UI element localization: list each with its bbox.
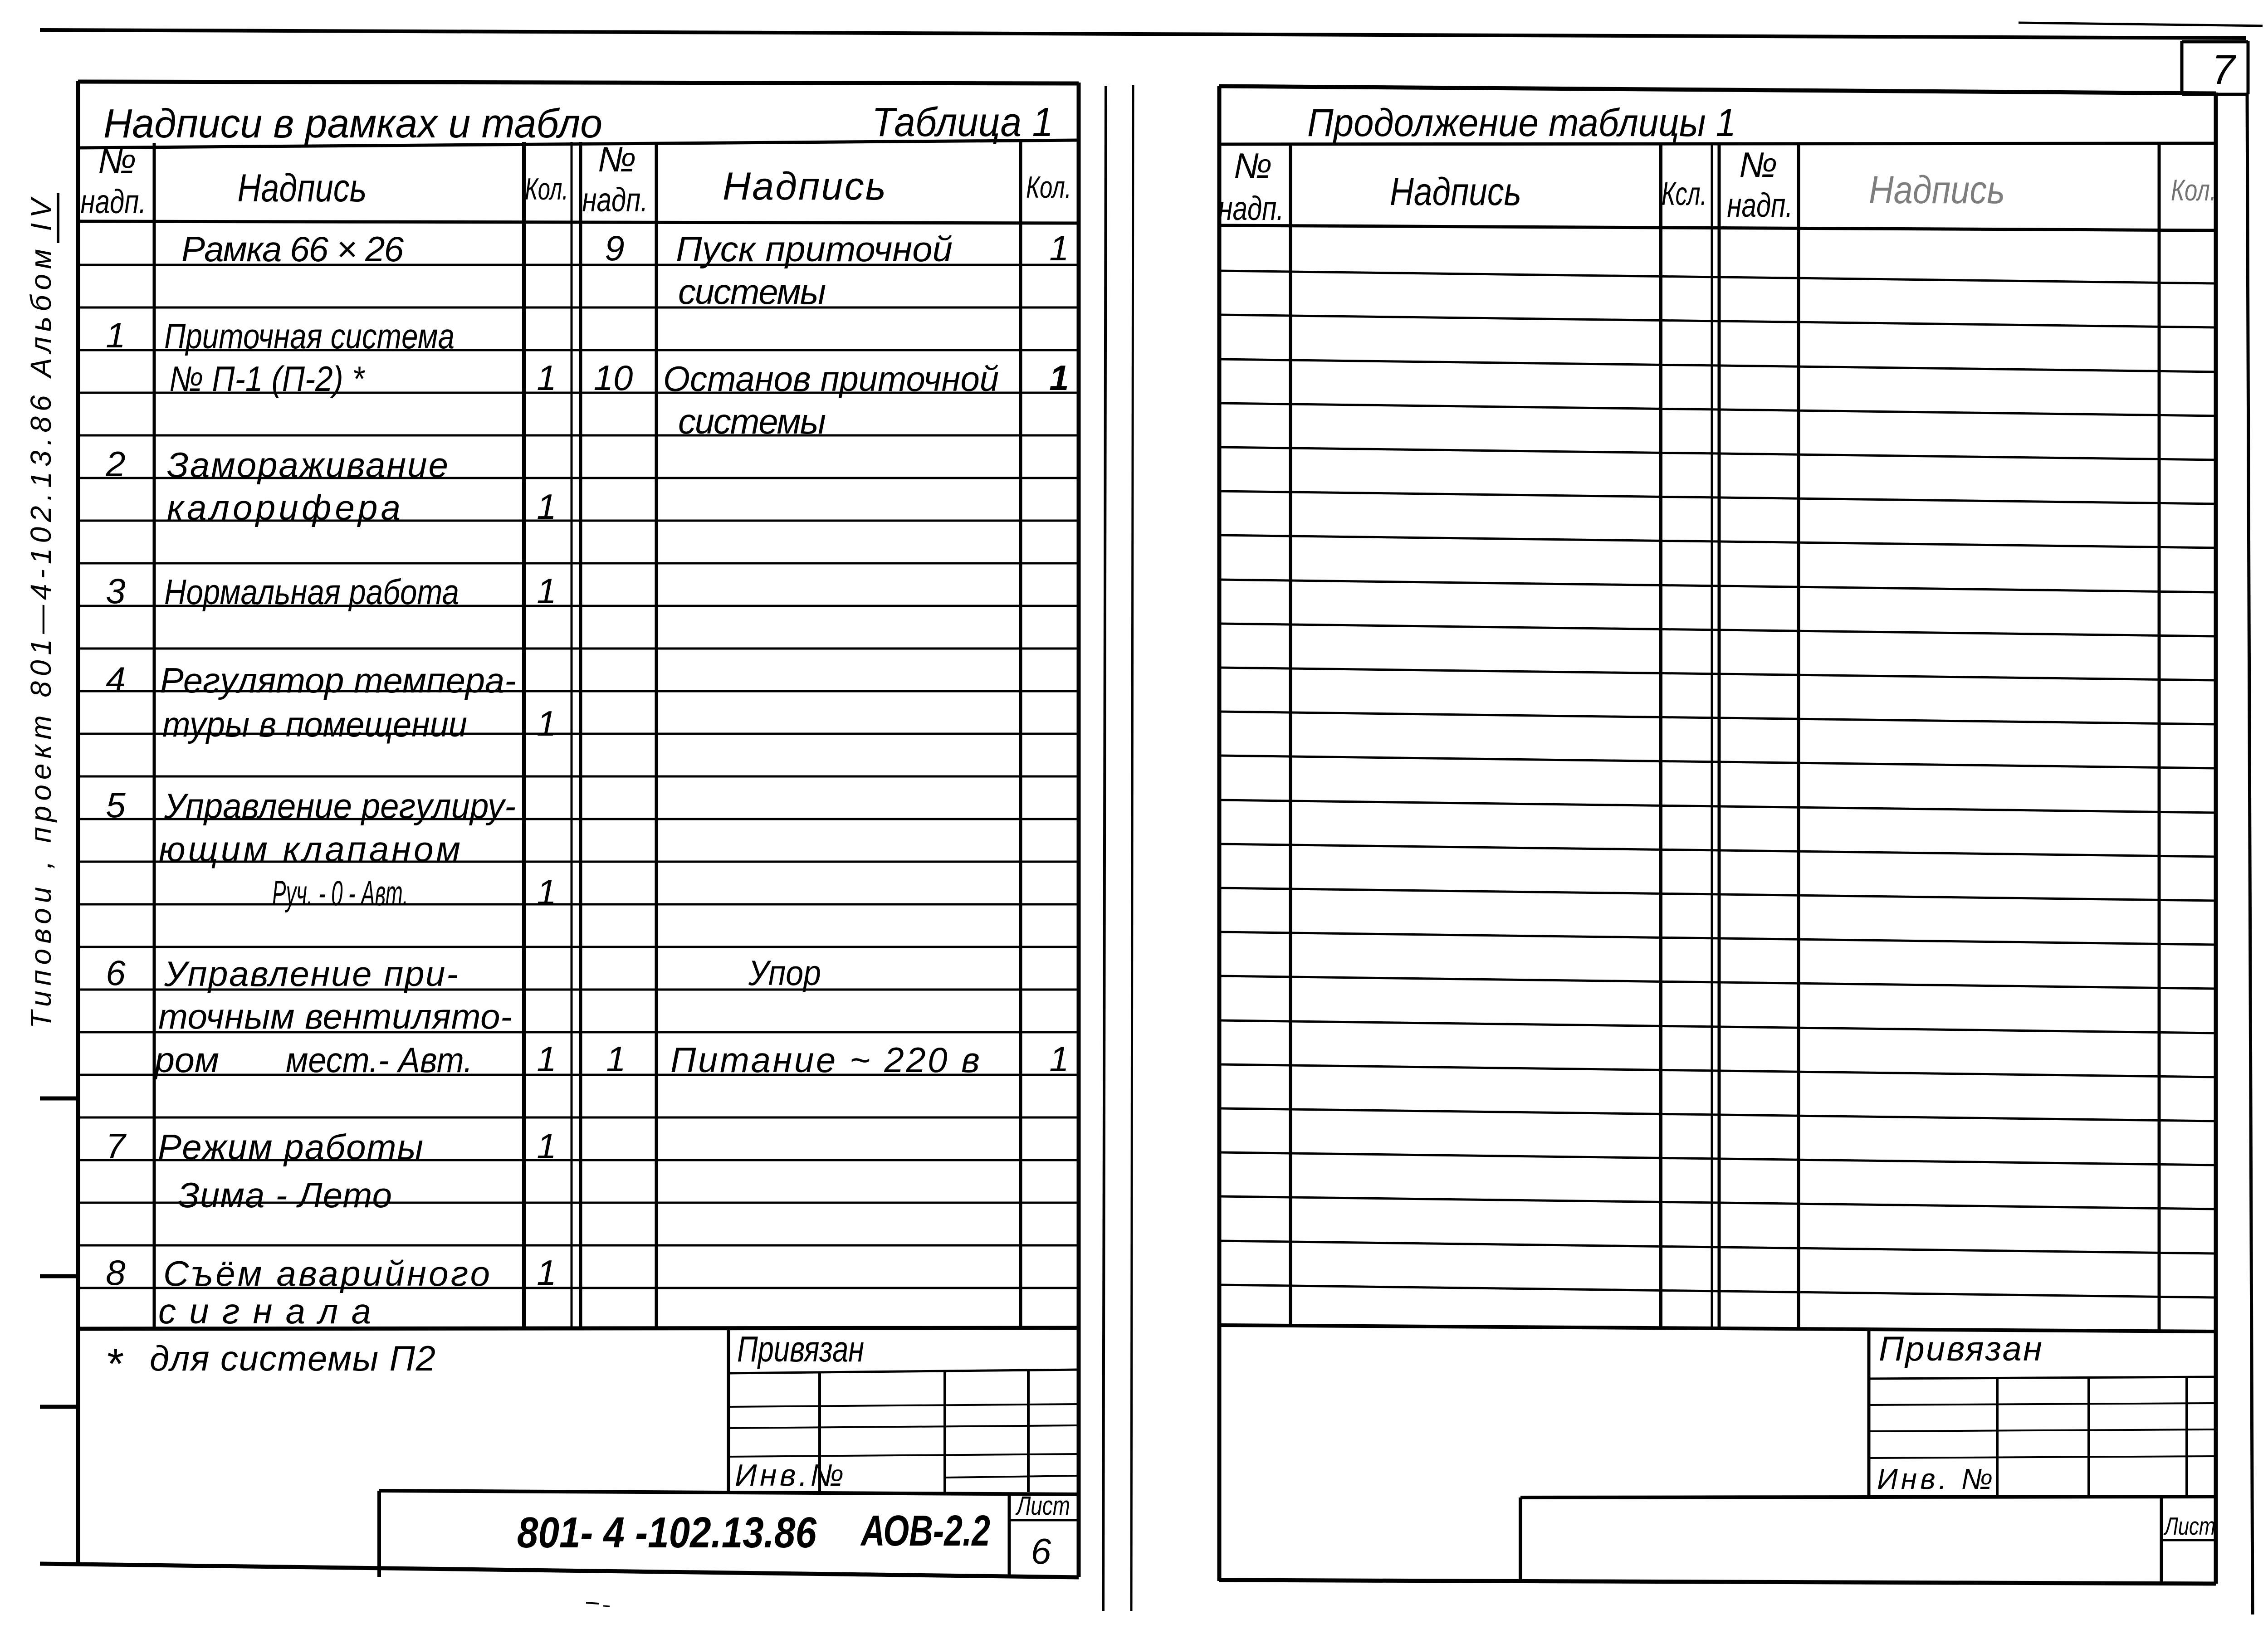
svg-text:Надпись: Надпись — [1869, 168, 2005, 212]
svg-text:№: № — [1234, 146, 1272, 185]
svg-text:АОВ-2.2: АОВ-2.2 — [860, 1507, 990, 1555]
svg-text:ющим клапаном: ющим клапаном — [159, 829, 460, 869]
svg-text:1: 1 — [537, 358, 556, 398]
svg-text:Инв.№: Инв.№ — [735, 1458, 844, 1493]
svg-text:4: 4 — [106, 659, 125, 699]
svg-text:Регулятор темпера-: Регулятор темпера- — [160, 660, 516, 700]
svg-text:10: 10 — [594, 358, 633, 398]
svg-text:1: 1 — [537, 703, 556, 743]
svg-text:Надпись: Надпись — [1390, 170, 1521, 214]
svg-text:Кол.: Кол. — [525, 172, 568, 206]
svg-text:8: 8 — [106, 1253, 125, 1293]
svg-text:надп.: надп. — [81, 183, 147, 220]
svg-text:Кол.: Кол. — [2171, 173, 2216, 207]
svg-text:№ П-1 (П-2) *: № П-1 (П-2) * — [169, 359, 365, 399]
svg-text:калорифера: калорифера — [167, 488, 401, 527]
svg-text:мест.- Авт.: мест.- Авт. — [286, 1040, 473, 1080]
svg-text:Рамка 66 × 26: Рамка 66 × 26 — [181, 229, 404, 269]
svg-text:надп.: надп. — [1218, 190, 1284, 227]
svg-text:Лист: Лист — [2164, 1512, 2215, 1540]
svg-text:Привязан: Привязан — [1879, 1330, 2042, 1368]
svg-text:Управление регулиру-: Управление регулиру- — [164, 786, 516, 826]
svg-text:7: 7 — [106, 1126, 127, 1166]
svg-text:Замораживание: Замораживание — [167, 445, 448, 485]
svg-text:801- 4 -102.13.86: 801- 4 -102.13.86 — [517, 1508, 817, 1557]
svg-text:1: 1 — [1049, 1039, 1069, 1079]
svg-text:Пуск приточной: Пуск приточной — [676, 229, 953, 269]
svg-text:Руч. - 0 - Авт.: Руч. - 0 - Авт. — [272, 873, 408, 913]
svg-text:3: 3 — [106, 571, 125, 611]
svg-text:1: 1 — [537, 487, 556, 527]
svg-text:Лист: Лист — [1015, 1491, 1070, 1521]
svg-text:Продолжение таблицы 1: Продолжение таблицы 1 — [1307, 101, 1736, 145]
svg-text:1: 1 — [606, 1039, 626, 1079]
svg-text:Останов приточной: Останов приточной — [663, 359, 999, 399]
svg-text:6: 6 — [106, 953, 126, 993]
svg-text:системы: системы — [678, 272, 826, 312]
svg-text:системы: системы — [678, 401, 826, 441]
svg-text:Приточная система: Приточная система — [164, 316, 455, 356]
svg-text:1: 1 — [537, 872, 556, 912]
svg-text:1: 1 — [1049, 228, 1069, 268]
svg-text:9: 9 — [605, 228, 624, 268]
svg-text:Питание ~ 220 в: Питание ~ 220 в — [670, 1040, 980, 1080]
svg-text:1: 1 — [537, 1253, 556, 1293]
svg-text:Привязан: Привязан — [737, 1329, 864, 1369]
svg-text:Надписи в рамках и табло: Надписи в рамках и табло — [103, 101, 602, 146]
svg-text:1: 1 — [537, 571, 556, 611]
svg-text:ром: ром — [154, 1040, 219, 1080]
svg-text:Таблица 1: Таблица 1 — [872, 100, 1053, 145]
svg-text:Кол.: Кол. — [1026, 170, 1071, 205]
svg-text:№: № — [98, 141, 136, 181]
svg-text:Зима - Лето: Зима - Лето — [178, 1175, 392, 1215]
svg-text:6: 6 — [1031, 1531, 1051, 1571]
svg-text:Упор: Упор — [748, 953, 821, 993]
svg-text:Режим работы: Режим работы — [158, 1127, 423, 1167]
svg-text:точным вентилято-: точным вентилято- — [158, 996, 512, 1036]
svg-text:Инв. №: Инв. № — [1877, 1463, 1993, 1495]
svg-text:*: * — [105, 1340, 123, 1388]
svg-text:№: № — [598, 139, 636, 179]
svg-text:Нормальная работа: Нормальная работа — [164, 572, 459, 612]
svg-text:Съём аварийного: Съём аварийного — [163, 1254, 490, 1293]
svg-text:1: 1 — [537, 1126, 556, 1166]
svg-text:Ксл.: Ксл. — [1662, 176, 1707, 212]
svg-text:Управление при-: Управление при- — [164, 954, 458, 994]
svg-text:для системы П2: для системы П2 — [150, 1338, 435, 1378]
svg-text:1: 1 — [106, 315, 125, 355]
svg-text:1: 1 — [537, 1039, 556, 1079]
svg-text:7: 7 — [2212, 47, 2236, 93]
svg-text:туры в помещении: туры в помещении — [162, 704, 467, 744]
svg-text:№: № — [1739, 145, 1777, 185]
svg-text:надп.: надп. — [1727, 186, 1793, 224]
svg-text:надп.: надп. — [582, 181, 648, 219]
svg-text:1: 1 — [1049, 358, 1069, 398]
svg-text:Надпись: Надпись — [238, 166, 367, 210]
svg-text:5: 5 — [106, 785, 126, 825]
svg-text:Надпись: Надпись — [723, 165, 886, 208]
svg-text:2: 2 — [105, 444, 125, 484]
